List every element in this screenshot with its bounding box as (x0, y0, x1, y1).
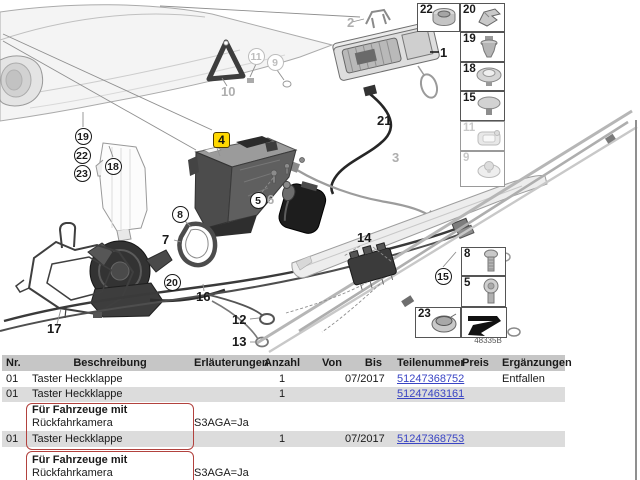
callout-12[interactable]: 12 (232, 313, 246, 326)
header-bis: Bis (345, 357, 385, 369)
pan-head-screw-icon (476, 278, 504, 306)
cell-nr: 01 (2, 373, 28, 385)
callout-9[interactable]: 9 (267, 54, 284, 71)
direction-arrow-icon (463, 309, 505, 338)
lock-housing (96, 143, 147, 241)
cell-anzahl: 1 (264, 433, 300, 445)
flange-nut-icon (429, 309, 459, 337)
sensor-plug-icon (475, 34, 503, 62)
callout-23[interactable]: 23 (74, 165, 91, 182)
sidebar-part-22[interactable]: 22 (417, 3, 460, 32)
callout-4-highlighted[interactable]: 4 (213, 132, 230, 148)
cell-beschreibung: Taster Heckklappe (28, 388, 192, 400)
sidebar-part-19[interactable]: 19 (460, 32, 505, 62)
callout-7[interactable]: 7 (162, 233, 169, 246)
callout-20[interactable]: 20 (164, 274, 181, 291)
table-header-row: Nr. Beschreibung Erläuterungen Anzahl Vo… (2, 355, 565, 371)
cell-erlaeuterungen: S3AGA=Ja (192, 402, 264, 429)
callout-14[interactable]: 14 (357, 231, 371, 244)
callout-10[interactable]: 10 (221, 85, 235, 98)
callout-2[interactable]: 2 (347, 16, 354, 29)
callout-5[interactable]: 5 (250, 192, 267, 209)
cell-ergaenzungen: Entfallen (499, 373, 565, 385)
sidebar-part-5[interactable]: 5 (461, 276, 506, 307)
sidebar-part-20[interactable]: 20 (460, 3, 505, 32)
sidebar-part-11[interactable]: 11 (460, 121, 505, 151)
grommet-nut-icon (430, 5, 458, 31)
blind-plug-icon (475, 93, 503, 120)
sidebar-part-18[interactable]: 18 (460, 62, 505, 91)
spoiler-strip (292, 176, 547, 278)
header-nr: Nr. (2, 357, 28, 369)
table-row[interactable]: 01 Taster Heckklappe 1 07/2017 512473687… (2, 371, 565, 387)
callout-17[interactable]: 17 (47, 322, 61, 335)
callout-22[interactable]: 22 (74, 147, 91, 164)
part-number-link[interactable]: 51247368753 (397, 433, 464, 445)
callout-18[interactable]: 18 (105, 158, 122, 175)
callout-8[interactable]: 8 (172, 206, 189, 223)
part-number-link[interactable]: 51247368752 (397, 373, 464, 385)
cell-nr: 01 (2, 433, 28, 445)
header-teilenummer: Teilenummer (385, 357, 459, 369)
mounting-clip (366, 10, 390, 28)
sidebar-part-23[interactable]: 23 (415, 307, 461, 338)
header-anzahl: Anzahl (264, 357, 300, 369)
cell-nr (2, 402, 28, 404)
sidebar-part-9[interactable]: 9 (460, 151, 505, 187)
cell-nr (2, 447, 28, 449)
header-von: Von (300, 357, 345, 369)
header-ergaenzungen: Ergänzungen (499, 357, 565, 369)
header-erlaeuterungen: Erläuterungen (192, 357, 264, 369)
cell-anzahl: 1 (264, 373, 300, 385)
cell-bis: 07/2017 (345, 433, 385, 445)
cell-bis: 07/2017 (345, 373, 385, 385)
oval-grommet-icon (475, 153, 503, 185)
parts-diagram-drawing (0, 0, 640, 355)
dome-grommet-icon (475, 64, 503, 90)
callout-3[interactable]: 3 (392, 151, 399, 164)
callout-11[interactable]: 11 (248, 48, 265, 65)
callout-21[interactable]: 21 (377, 114, 391, 127)
diagram-id-label: 48335B (466, 336, 510, 345)
torx-screw-icon (476, 249, 504, 276)
sidebar-part-15[interactable]: 15 (460, 91, 505, 121)
check-strap (179, 224, 215, 265)
clamp-clip-icon (475, 5, 503, 31)
bracket-clip-icon (475, 123, 503, 150)
cell-anzahl: 1 (264, 388, 300, 400)
callout-6[interactable]: 6 (267, 193, 274, 206)
cell-beschreibung: Taster Heckklappe (28, 373, 192, 385)
header-preis: Preis (459, 357, 499, 369)
cell-erlaeuterungen: S3AGA=Ja (192, 447, 264, 479)
callout-16[interactable]: 16 (196, 290, 210, 303)
callout-1[interactable]: 1 (440, 46, 447, 59)
parts-catalog-screen: 19 22 23 18 8 20 5 15 11 9 4 1 2 3 6 7 1… (0, 0, 640, 480)
callout-19[interactable]: 19 (75, 128, 92, 145)
sidebar-direction-box[interactable] (461, 307, 507, 338)
selection-highlight-box (26, 403, 194, 450)
part-number-link[interactable]: 51247463161 (397, 388, 464, 400)
table-row[interactable]: 01 Taster Heckklappe 1 51247463161 (2, 387, 565, 403)
callout-15[interactable]: 15 (435, 268, 452, 285)
window-edge-line (635, 120, 637, 480)
parts-diagram: 19 22 23 18 8 20 5 15 11 9 4 1 2 3 6 7 1… (0, 0, 640, 355)
cell-nr: 01 (2, 388, 28, 400)
header-beschreibung: Beschreibung (28, 357, 192, 369)
cable-21 (331, 94, 391, 194)
sidebar-part-8[interactable]: 8 (461, 247, 506, 276)
callout-13[interactable]: 13 (232, 335, 246, 348)
selection-highlight-box (26, 451, 194, 480)
